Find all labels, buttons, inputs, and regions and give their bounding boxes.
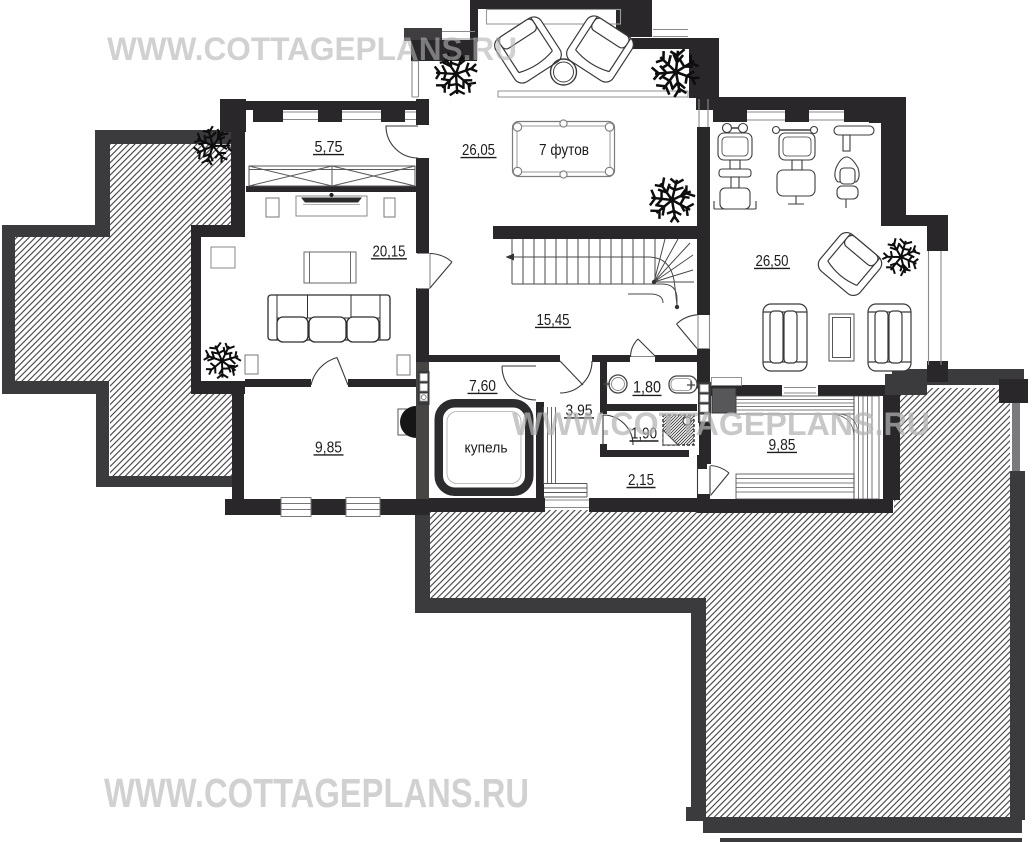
svg-text:1,80: 1,80 <box>633 378 661 397</box>
svg-text:26,50: 26,50 <box>756 253 789 270</box>
svg-text:WWW.COTTAGEPLANS.RU: WWW.COTTAGEPLANS.RU <box>107 31 517 67</box>
svg-text:26,05: 26,05 <box>462 142 495 159</box>
svg-text:WWW.COTTAGEPLANS.RU: WWW.COTTAGEPLANS.RU <box>512 406 930 442</box>
svg-text:купель: купель <box>465 440 508 457</box>
svg-text:15,45: 15,45 <box>537 312 570 329</box>
svg-text:20,15: 20,15 <box>373 243 406 260</box>
svg-text:5,75: 5,75 <box>315 139 343 156</box>
svg-text:7 футов: 7 футов <box>539 142 589 159</box>
svg-text:WWW.COTTAGEPLANS.RU: WWW.COTTAGEPLANS.RU <box>104 770 529 816</box>
svg-text:7,60: 7,60 <box>469 378 496 395</box>
svg-text:9,85: 9,85 <box>315 440 342 457</box>
svg-text:2,15: 2,15 <box>628 472 654 489</box>
